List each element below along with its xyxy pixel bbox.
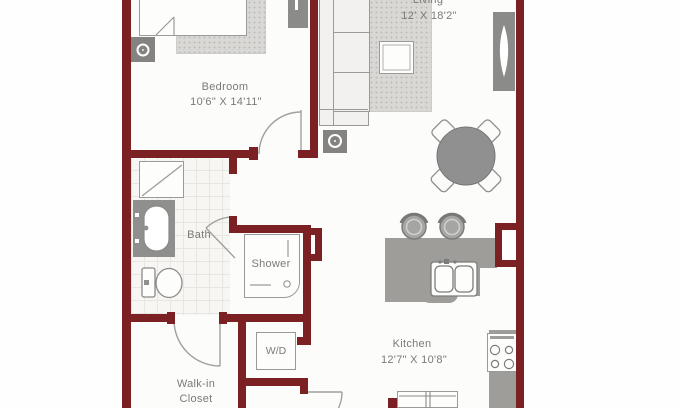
- bedroom-dimensions: 10'6" X 14'11": [190, 96, 262, 108]
- wall-left-exterior: [122, 0, 131, 408]
- wall-end-cap: [297, 337, 311, 345]
- living-room-label: Living: [413, 0, 444, 6]
- refrigerator-icon: [397, 391, 458, 408]
- sofa-icon: [319, 0, 369, 126]
- wall-shower-east: [303, 225, 311, 345]
- media-console-icon: [493, 12, 515, 91]
- wall-bath-east-upper: [229, 158, 237, 174]
- wd-label: W/D: [266, 345, 286, 357]
- niche-wall-right: [315, 228, 322, 261]
- sofa-back: [320, 0, 334, 125]
- sofa-cushion: [333, 0, 370, 34]
- kitchen-label: Kitchen: [393, 338, 432, 350]
- wall-laundry-south: [246, 378, 308, 386]
- shower-label: Shower: [251, 258, 290, 270]
- dresser-tv-icon: [288, 0, 308, 28]
- wall-bedroom-south: [122, 150, 258, 158]
- coffee-table-icon: [379, 41, 414, 74]
- bed-icon: [139, 0, 247, 36]
- wall-bath-closet-right: [220, 314, 308, 322]
- kitchen-dimensions: 12'7" X 10'8": [381, 354, 447, 366]
- sofa-cushion: [333, 32, 370, 74]
- door-jamb: [167, 312, 175, 324]
- kitchen-counter-leg: [385, 238, 427, 302]
- living-room-dimensions: 12' X 18'2": [401, 10, 456, 22]
- kitchen-counter-sink-section: [427, 238, 480, 296]
- washer-dryer-icon: W/D: [256, 332, 296, 370]
- linen-cabinet-icon: [139, 161, 184, 198]
- wall-bedroom-south-stub: [298, 150, 318, 158]
- walk-in-closet-label-line1: Walk-in: [177, 378, 215, 390]
- wall-right-exterior: [516, 0, 524, 408]
- bath-label: Bath: [187, 229, 211, 241]
- bedroom-label: Bedroom: [202, 81, 249, 93]
- sofa-armrest: [320, 109, 368, 125]
- side-table-lamp-icon: [323, 130, 347, 153]
- wall-bedroom-living: [310, 0, 318, 157]
- floor-plan: W/D: [0, 0, 680, 408]
- door-jamb: [249, 147, 258, 160]
- walk-in-closet-label-line2: Closet: [180, 393, 213, 405]
- wall-shower-north: [229, 225, 311, 233]
- kitchen-column: [495, 223, 523, 267]
- counter-front-tab: [421, 294, 458, 303]
- sofa-cushion: [333, 72, 370, 112]
- range-stove-icon: [487, 333, 517, 372]
- wall-entry-stub: [300, 386, 308, 394]
- wall-kitchen-stub: [388, 398, 397, 408]
- wall-closet-east: [238, 322, 246, 408]
- vanity-icon: [133, 200, 175, 257]
- nightstand-lamp-icon: [131, 37, 155, 62]
